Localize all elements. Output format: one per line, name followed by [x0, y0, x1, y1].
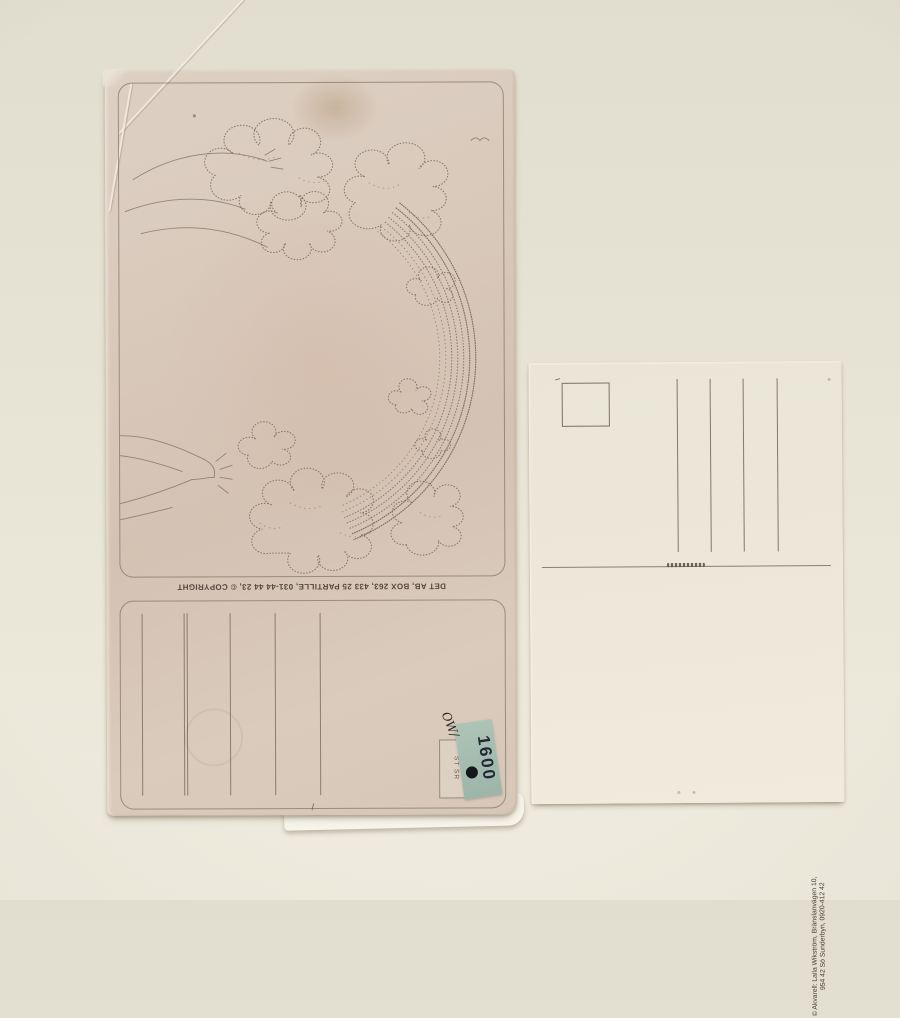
- postcard-image-panel: [118, 81, 506, 577]
- writing-line: [187, 613, 189, 795]
- paper-speck: [677, 791, 680, 794]
- publisher-imprint: DET AB, BOX 263, 433 25 PARTILLE, 031-44…: [106, 576, 516, 591]
- writing-line: [230, 613, 232, 795]
- writing-line: [184, 613, 186, 795]
- paper-speck: [828, 378, 831, 381]
- address-line: [710, 379, 712, 552]
- edge-notch: [312, 803, 319, 811]
- address-line: [677, 379, 679, 552]
- printer-mark: [667, 563, 705, 567]
- writing-line: [275, 613, 277, 795]
- pencil-mark: [554, 374, 560, 380]
- ink-dot: [465, 766, 479, 780]
- writing-line: [320, 613, 322, 795]
- copyright-line-1: © Akvarell: Laila Wikström, Bränslanväge…: [811, 877, 819, 1017]
- stippled-artwork: [119, 82, 505, 576]
- small-postcard-back: © Akvarell: Laila Wikström, Bränslanväge…: [528, 361, 844, 804]
- copyright-line-2: 954 42 Sö Sunderbyn, 0920-412 42: [819, 798, 829, 1016]
- stamp-box: [562, 383, 610, 427]
- large-postcard-back: DET AB, BOX 263, 433 25 PARTILLE, 031-44…: [105, 69, 518, 815]
- address-line: [777, 378, 779, 551]
- paper-speck: [692, 791, 695, 794]
- address-line: [743, 379, 745, 552]
- bird-icon: [471, 138, 489, 141]
- writing-line: [142, 614, 144, 796]
- copyright-imprint: © Akvarell: Laila Wikström, Bränslanväge…: [811, 798, 829, 1016]
